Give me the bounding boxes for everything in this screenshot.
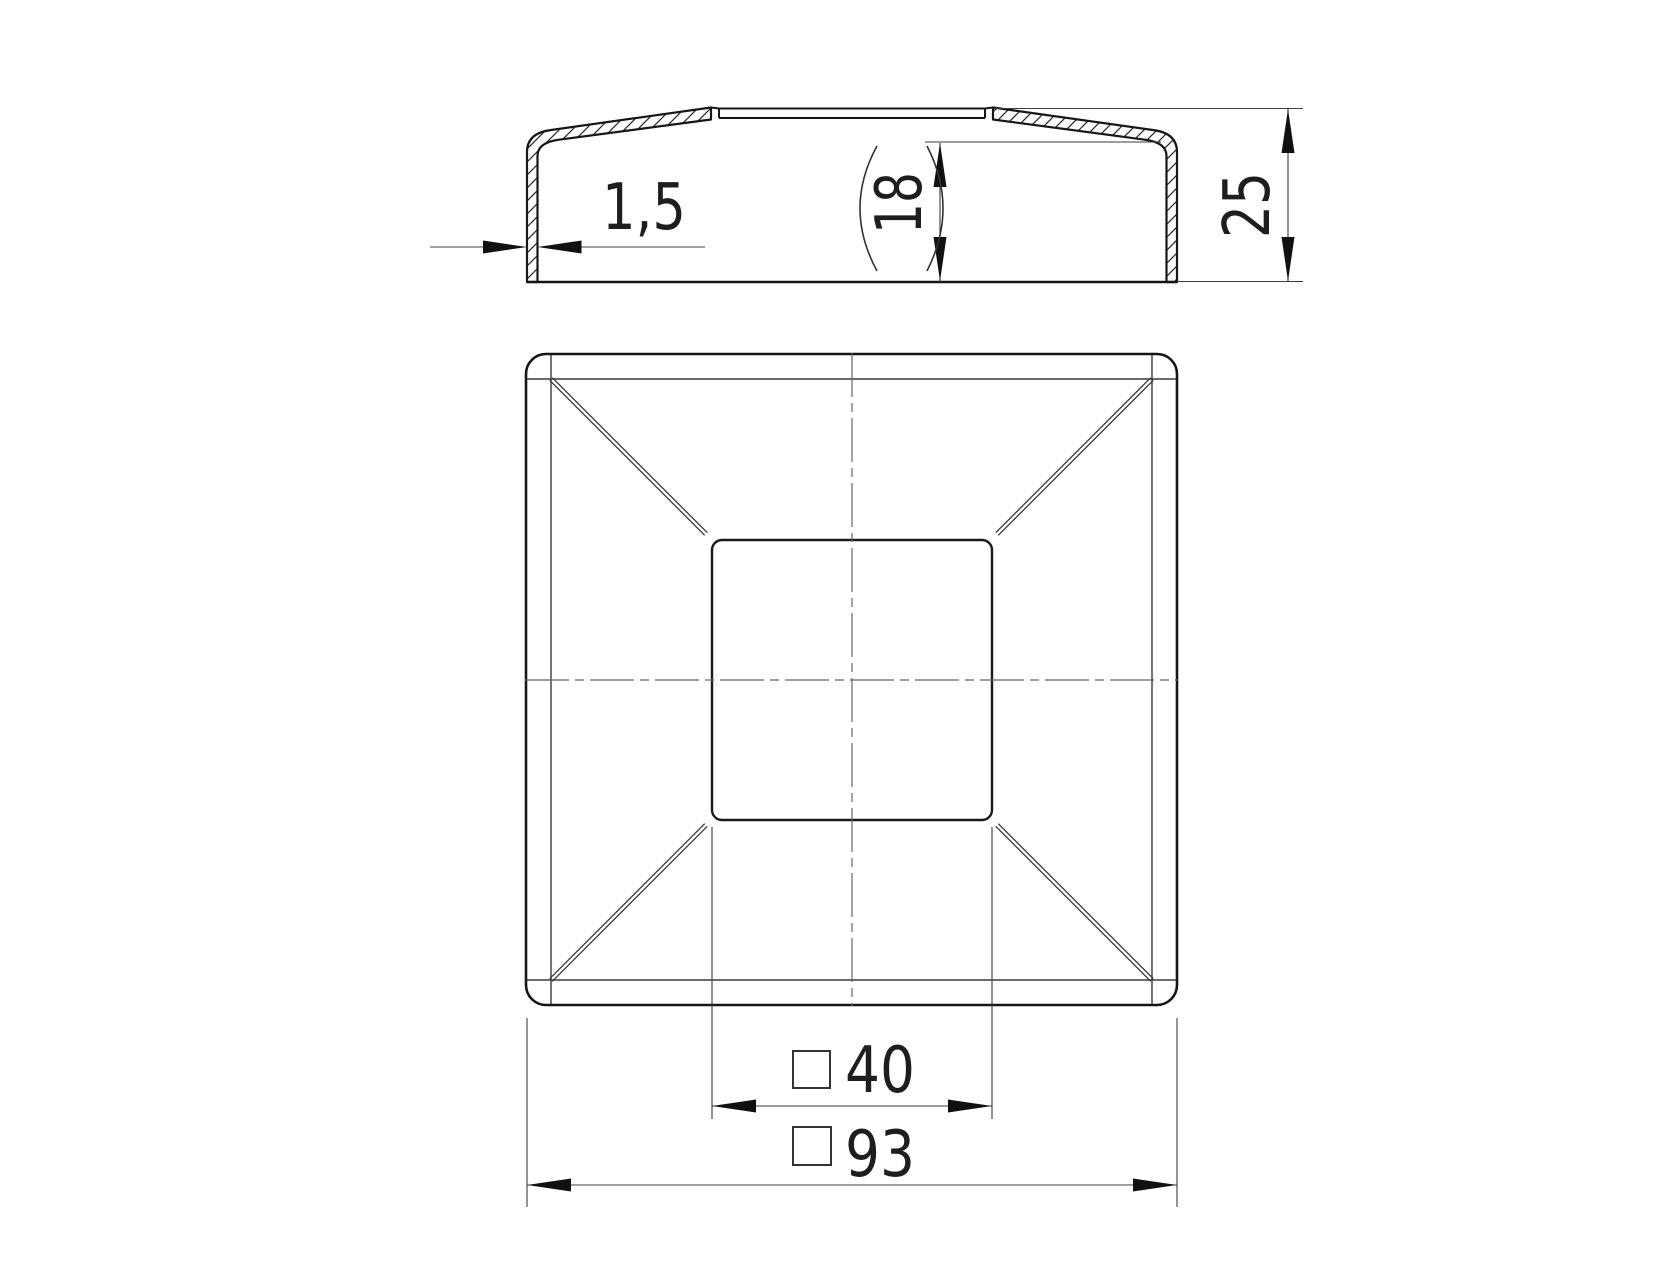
arrowhead [1282,109,1295,153]
dim-inner-square-label: 40 [845,1034,915,1108]
arrowhead [948,1100,992,1113]
dim-outer-square: 93 [527,1118,1177,1192]
dim-outer-square-label: 93 [845,1118,915,1192]
square-symbol-icon [793,1051,830,1088]
section-wall-right [993,108,1177,283]
dim-inner-height: 18 [860,143,947,281]
square-symbol-icon [793,1127,831,1165]
side-section-view: 1,5 18 25 [430,108,1303,283]
arrowhead [1133,1179,1177,1192]
centerlines [525,353,1178,1006]
arrowhead [538,241,582,254]
dim-inner-square: 40 [712,1034,992,1113]
dim-overall-height-label: 25 [1211,172,1285,238]
drawing-canvas: 1,5 18 25 [0,0,1680,1261]
arrowhead [527,1179,571,1192]
dim-overall-height: 25 [1211,109,1295,281]
dim-wall-thickness-label: 1,5 [602,171,686,245]
arrowhead [483,241,527,254]
plan-view: 40 93 [525,353,1178,1207]
arrowhead [712,1100,756,1113]
dim-inner-height-label: 18 [863,172,937,234]
arrowhead [1282,237,1295,281]
arrowhead [934,237,947,281]
technical-drawing: 1,5 18 25 [0,0,1680,1261]
dim-wall-thickness: 1,5 [430,171,705,254]
section-top-plateau [711,108,993,119]
